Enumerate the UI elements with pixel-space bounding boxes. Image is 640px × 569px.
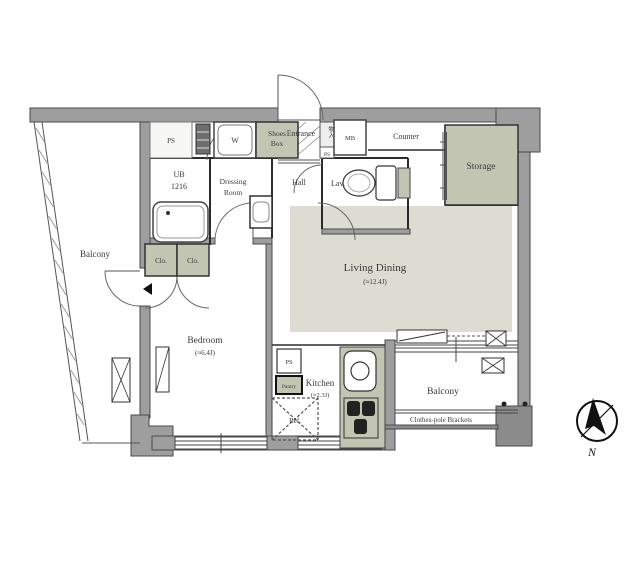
balcony-bottom-label: Balcony: [427, 387, 459, 397]
wall-left-lower: [140, 306, 150, 418]
wall-right: [518, 152, 530, 438]
dressing-room-label-1: Dressing: [220, 177, 247, 186]
shoes-box-label-1: Shoes: [268, 129, 286, 138]
wall-bedroom-right: [266, 244, 272, 436]
pantry-label: Pantry: [282, 384, 297, 390]
toilet: [343, 166, 410, 200]
floorplan-page: N PS W Shoes Box Entrance 物入 PS MB Count…: [0, 0, 640, 569]
floorplan-drawing: N PS W Shoes Box Entrance 物入 PS MB Count…: [0, 0, 640, 569]
wall-bedroom-top-right: [253, 238, 272, 244]
pipe-space-label-1: PS: [167, 137, 175, 145]
living-dining-size: (≈12.4J): [363, 278, 387, 286]
ac-unit-balcony-left: [112, 358, 130, 402]
shoes-box-label-2: Box: [271, 139, 284, 148]
balcony-left-label: Balcony: [80, 249, 110, 259]
drain-icon: [166, 211, 170, 215]
ac-mark-bedroom: [156, 347, 169, 392]
compass-north-label: N: [587, 445, 597, 459]
bedroom-label: Bedroom: [187, 336, 223, 346]
kitchen-counter: [340, 347, 385, 448]
closet-label-1: Clo.: [155, 257, 167, 265]
lavatory-label: Lav.: [331, 179, 345, 188]
hall-closet-label: 物入: [327, 125, 334, 138]
bedroom-size: (≈6.4J): [195, 349, 216, 357]
bolt-icon: [523, 402, 528, 407]
bathtub: [153, 202, 208, 242]
drainpipe-block: [496, 406, 532, 446]
ac-unit-balcony-bottom: [482, 358, 504, 373]
meter-box-label: MB: [345, 135, 356, 142]
entrance-label: Entrance: [287, 129, 316, 138]
wall-top-left: [30, 108, 278, 122]
wall-lav-bottom: [322, 229, 410, 234]
closet-label-2: Clo.: [187, 257, 199, 265]
dressing-room-label-2: Room: [224, 188, 243, 197]
living-dining-label: Living Dining: [344, 262, 407, 274]
pipe-space-label-2: PS: [324, 152, 330, 158]
washer-label: W: [231, 136, 239, 145]
counter-label: Counter: [393, 132, 419, 141]
kitchen-size: (≈2.3J): [311, 392, 330, 399]
kitchen-label: Kitchen: [306, 378, 335, 388]
refrigerator-label: Ref.: [289, 417, 301, 425]
unit-bath-label-1: UB: [173, 170, 184, 179]
kitchen-sink: [344, 351, 376, 391]
storage-label: Storage: [466, 162, 495, 172]
unit-bath-label-2: 1216: [171, 182, 187, 191]
pipe-space-label-3: PS: [285, 359, 293, 366]
bolt-icon: [502, 402, 507, 407]
balcony-outer-strip: [382, 425, 498, 429]
clothes-pole-note: Clothes-pole Brackets: [410, 416, 472, 424]
hall-label: Hall: [292, 178, 307, 187]
linen-shelf: [196, 124, 210, 154]
wall-kitchen-balcony: [385, 340, 395, 450]
vanity-basin: [250, 196, 272, 228]
